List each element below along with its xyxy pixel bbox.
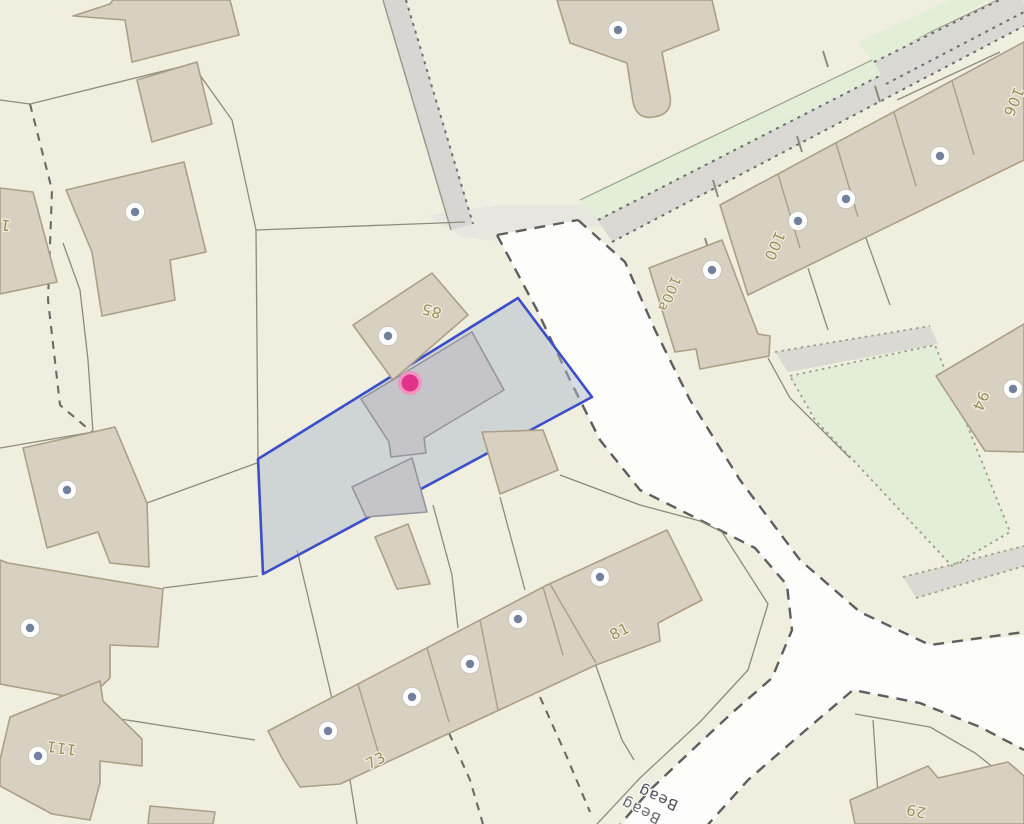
map-canvas[interactable]: 85 100 100a 106 94 81 73 111 29 1 Beag B… [0,0,1024,824]
house-number: 1 [0,215,12,234]
location-pin[interactable] [398,371,422,395]
